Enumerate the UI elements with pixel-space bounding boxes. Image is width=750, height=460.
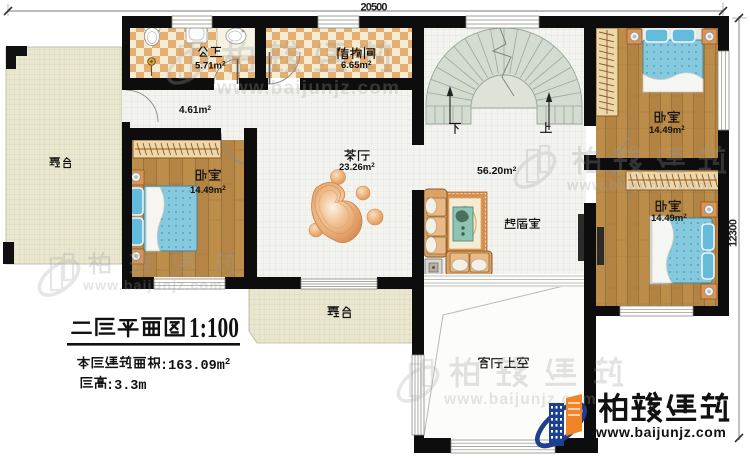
svg-text:14.49m2: 14.49m2 <box>651 213 687 224</box>
svg-text:23.26m2: 23.26m2 <box>339 162 375 173</box>
svg-text:14.49m2: 14.49m2 <box>649 125 685 136</box>
svg-text:6.65m2: 6.65m2 <box>341 60 372 71</box>
svg-text:4.61m2: 4.61m2 <box>179 105 211 116</box>
svg-text:56.20m2: 56.20m2 <box>477 165 517 177</box>
svg-text:12300: 12300 <box>728 219 740 247</box>
svg-text:5.71m2: 5.71m2 <box>195 61 226 72</box>
svg-text:www.baijunjz.com: www.baijunjz.com <box>595 424 726 440</box>
svg-text:14.49m2: 14.49m2 <box>190 185 226 196</box>
svg-text:20500: 20500 <box>361 2 388 14</box>
svg-text::163.09m2: :163.09m2 <box>160 357 230 374</box>
svg-text:www.baijunjz.com: www.baijunjz.com <box>216 78 400 99</box>
svg-text:www.baijunjz.com: www.baijunjz.com <box>566 178 711 194</box>
svg-text:1:100: 1:100 <box>189 312 239 344</box>
svg-text::3.3m: :3.3m <box>106 379 147 394</box>
svg-text:www.baijunjz.com: www.baijunjz.com <box>82 277 223 293</box>
